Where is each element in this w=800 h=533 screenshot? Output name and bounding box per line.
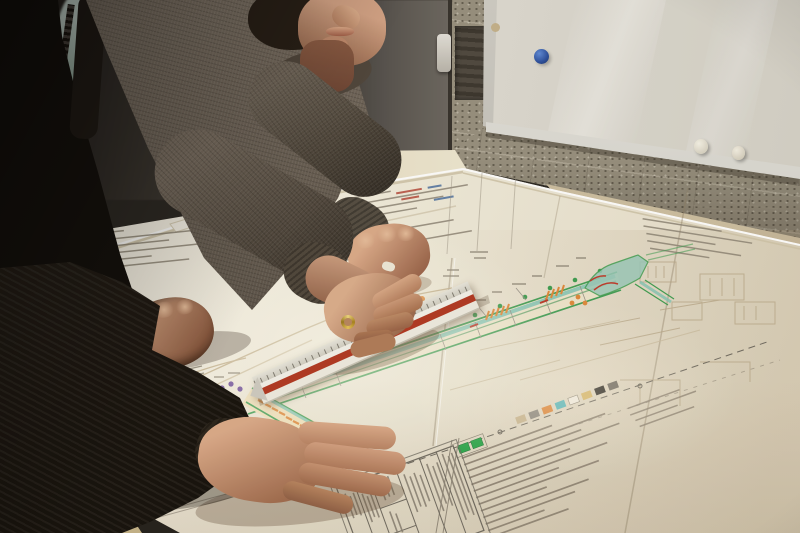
legend-sheet-border bbox=[436, 438, 459, 533]
legend-block bbox=[451, 356, 719, 533]
person-left-cuff bbox=[188, 410, 276, 491]
gold-ring bbox=[341, 315, 355, 329]
title-block bbox=[330, 439, 490, 533]
person-main-cuff-right bbox=[317, 187, 399, 265]
whiteboard-reflection bbox=[682, 0, 778, 170]
road-corridor bbox=[248, 258, 621, 414]
person-main-face bbox=[298, 0, 386, 66]
knuckle-highlight bbox=[375, 225, 399, 243]
person-main-lips bbox=[326, 27, 354, 36]
white-magnet-2 bbox=[732, 146, 745, 160]
ruler-top-face bbox=[252, 281, 471, 385]
person-main-nose bbox=[329, 1, 364, 32]
table-surface bbox=[0, 0, 800, 533]
person-main-hair bbox=[248, 0, 336, 50]
rail-shadow bbox=[0, 0, 800, 533]
person-left-fist bbox=[120, 290, 221, 377]
knuckle-highlight bbox=[395, 225, 416, 242]
plan-sheets bbox=[0, 0, 800, 533]
road-plan-drawing bbox=[0, 0, 800, 533]
person-main-arm-right bbox=[234, 46, 417, 211]
index-finger bbox=[297, 421, 396, 451]
corner-shadow-overlay bbox=[0, 0, 800, 533]
person-left-sleeve bbox=[0, 0, 800, 533]
boundary-lines bbox=[362, 320, 780, 479]
person-left-flat-hand bbox=[193, 410, 327, 510]
intersection-markers bbox=[219, 381, 242, 391]
photo-scene bbox=[0, 0, 800, 533]
ring-finger bbox=[297, 461, 393, 498]
concrete-block-wall bbox=[0, 0, 800, 533]
bottom-sheet-border bbox=[112, 464, 336, 530]
table-surface-strip bbox=[0, 0, 800, 533]
ruler-end-cap bbox=[244, 377, 267, 406]
pinky-finger bbox=[281, 479, 355, 516]
table-edge-trim bbox=[0, 0, 800, 533]
tan-dot bbox=[491, 23, 500, 32]
white-magnet-1 bbox=[694, 139, 708, 154]
small-white-object bbox=[381, 260, 396, 272]
vignette-overlay bbox=[0, 0, 800, 533]
knuckle-highlight bbox=[354, 231, 378, 249]
whiteboard-frame bbox=[0, 0, 800, 533]
wall-shadow bbox=[0, 0, 800, 533]
legend-color-chips bbox=[515, 381, 619, 425]
door-wall bbox=[335, 0, 457, 175]
person-left-torso bbox=[0, 0, 800, 533]
door-frame bbox=[448, 0, 453, 170]
person-main-fist bbox=[345, 220, 433, 290]
person-main-chin bbox=[320, 36, 348, 55]
title-block-text bbox=[344, 451, 475, 533]
detail-drawings bbox=[580, 262, 775, 406]
person-main-neck bbox=[300, 40, 354, 92]
table-front-edge bbox=[0, 0, 800, 533]
light-switch bbox=[437, 34, 451, 72]
table-edge-band bbox=[0, 0, 800, 533]
existing-road-lines bbox=[148, 288, 452, 410]
blue-magnet bbox=[534, 49, 549, 64]
concrete-block-column bbox=[452, 0, 492, 170]
ruler-tick-marks bbox=[254, 285, 472, 386]
middle-finger bbox=[303, 441, 407, 476]
background-wall bbox=[0, 0, 345, 200]
knuckle-highlight bbox=[174, 297, 197, 316]
paper-shading bbox=[0, 380, 800, 533]
ruler-red-stripe-face bbox=[256, 290, 480, 405]
person-main-forearm bbox=[298, 248, 386, 323]
paper-shading bbox=[430, 230, 800, 533]
legend-text-rows bbox=[462, 404, 641, 533]
road-branch bbox=[242, 388, 342, 454]
whiteboard-pen-rail bbox=[0, 0, 800, 533]
road-intersection-right bbox=[570, 244, 695, 305]
person-left-jacket-flap bbox=[69, 0, 107, 140]
wall-recess bbox=[455, 26, 488, 100]
scale-ruler bbox=[252, 281, 480, 404]
window-light-sliver bbox=[46, 0, 95, 120]
person-main-arm-left bbox=[139, 114, 369, 296]
knuckle-highlight bbox=[152, 300, 177, 320]
color-cast-overlay bbox=[0, 0, 800, 533]
person-main-cuff-left bbox=[275, 232, 360, 313]
person-main-torso bbox=[0, 0, 800, 533]
knuckle-highlight bbox=[131, 309, 156, 329]
sheet-edges bbox=[62, 169, 800, 533]
whiteboard bbox=[0, 0, 800, 533]
whiteboard-reflection bbox=[544, 0, 666, 150]
person-main-collar bbox=[265, 43, 375, 105]
jacket-zipper bbox=[52, 4, 75, 116]
schedule-fine-print bbox=[69, 171, 779, 271]
